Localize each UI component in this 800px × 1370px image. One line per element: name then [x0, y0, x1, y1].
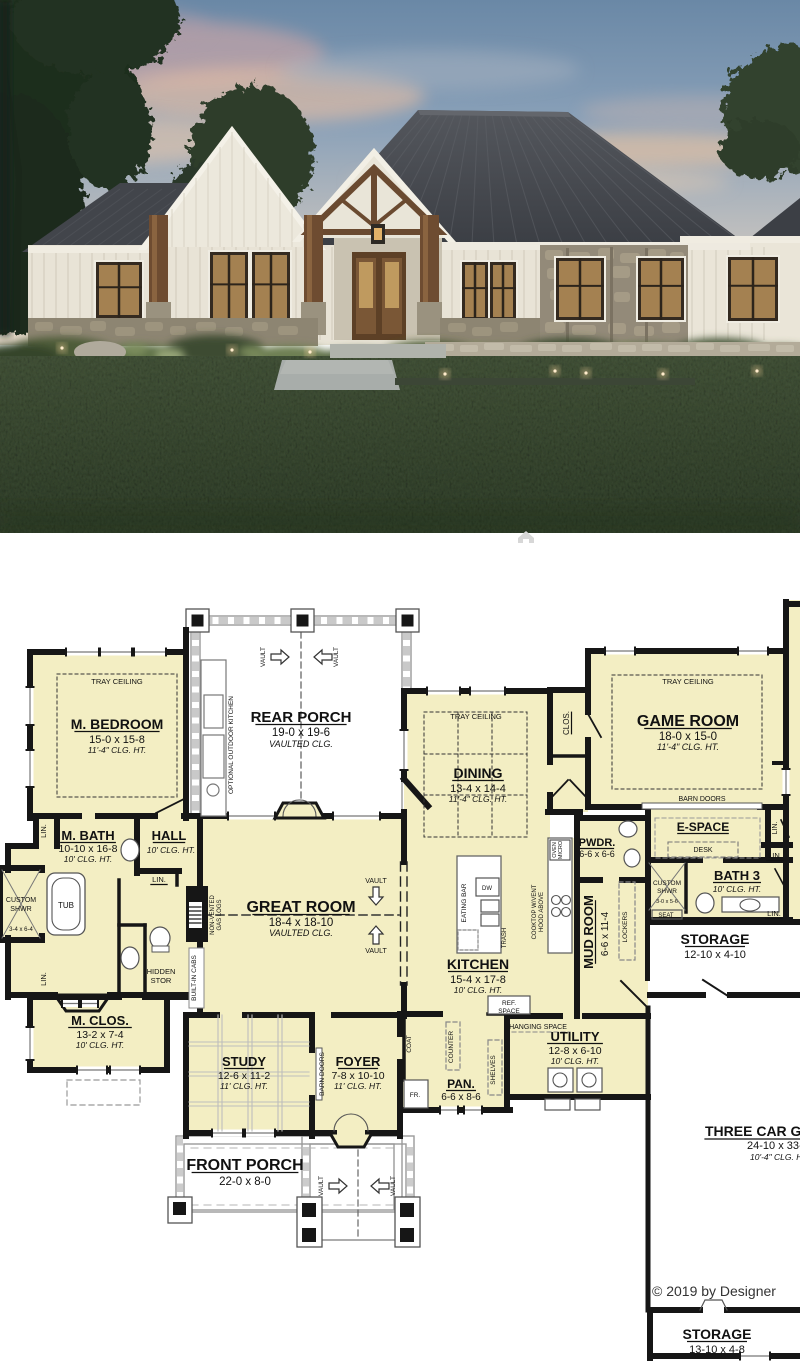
- svg-text:BUILT-IN CABS: BUILT-IN CABS: [191, 954, 198, 1000]
- svg-text:SHWR: SHWR: [657, 888, 677, 895]
- svg-text:10'-4" CLG. H: 10'-4" CLG. H: [750, 1152, 800, 1162]
- svg-text:TRAY CEILING: TRAY CEILING: [91, 677, 143, 686]
- svg-text:BARN DOORS: BARN DOORS: [678, 796, 725, 803]
- svg-text:11' CLG. HT.: 11' CLG. HT.: [334, 1081, 382, 1091]
- svg-text:REF.: REF.: [502, 1000, 516, 1007]
- svg-text:11'-4" CLG. HT.: 11'-4" CLG. HT.: [449, 794, 508, 804]
- svg-text:OPTIONAL OUTDOOR KITCHEN: OPTIONAL OUTDOOR KITCHEN: [228, 696, 235, 794]
- svg-text:MICRO: MICRO: [558, 840, 564, 859]
- svg-text:LIN.: LIN.: [152, 875, 166, 884]
- svg-text:REAR PORCH: REAR PORCH: [251, 709, 352, 726]
- svg-text:3-0 x 5-6: 3-0 x 5-6: [656, 899, 678, 905]
- svg-text:GAS LOGS: GAS LOGS: [217, 899, 223, 930]
- svg-text:10' CLG. HT.: 10' CLG. HT.: [551, 1056, 600, 1066]
- svg-text:10' CLG. HT.: 10' CLG. HT.: [147, 845, 196, 855]
- svg-text:HOOD ABOVE: HOOD ABOVE: [539, 892, 545, 932]
- svg-text:LIN.: LIN.: [767, 909, 781, 918]
- svg-text:FOYER: FOYER: [336, 1054, 381, 1069]
- svg-text:VAULTED CLG.: VAULTED CLG.: [269, 928, 333, 938]
- svg-text:CUSTOM: CUSTOM: [6, 897, 36, 904]
- svg-text:FR.: FR.: [410, 1092, 421, 1099]
- svg-text:UTILITY: UTILITY: [550, 1029, 599, 1044]
- svg-text:GREAT ROOM: GREAT ROOM: [246, 899, 355, 916]
- svg-text:SPACE: SPACE: [498, 1008, 520, 1015]
- svg-text:24-10 x 33-: 24-10 x 33-: [747, 1140, 800, 1152]
- svg-text:DINING: DINING: [454, 765, 503, 781]
- svg-text:M. BATH: M. BATH: [61, 828, 114, 843]
- svg-text:LIN.: LIN.: [768, 851, 782, 860]
- svg-text:PWDR.: PWDR.: [579, 837, 616, 849]
- svg-text:TRASH: TRASH: [502, 928, 508, 948]
- svg-text:© 2019 by Designer: © 2019 by Designer: [652, 1283, 776, 1299]
- svg-text:M. CLOS.: M. CLOS.: [71, 1013, 129, 1028]
- svg-text:MUD ROOM: MUD ROOM: [581, 895, 596, 969]
- svg-text:SHELVES: SHELVES: [490, 1055, 497, 1085]
- svg-text:FRONT PORCH: FRONT PORCH: [186, 1157, 303, 1174]
- svg-text:10' CLG. HT.: 10' CLG. HT.: [76, 1040, 125, 1050]
- svg-text:HIDDEN: HIDDEN: [147, 967, 176, 976]
- svg-text:BARN DOORS: BARN DOORS: [319, 1051, 326, 1095]
- svg-text:CLOS.: CLOS.: [562, 711, 571, 735]
- svg-text:VAULT: VAULT: [365, 948, 387, 955]
- svg-text:CUSTOM: CUSTOM: [653, 880, 681, 887]
- svg-text:TRAY CEILING: TRAY CEILING: [450, 712, 502, 721]
- svg-text:6-6 x 11-4: 6-6 x 11-4: [600, 911, 611, 956]
- svg-text:LIN.: LIN.: [772, 822, 779, 835]
- svg-text:BATH 3: BATH 3: [714, 868, 760, 883]
- svg-text:SEAT: SEAT: [658, 913, 674, 919]
- svg-text:VAULT: VAULT: [333, 647, 340, 667]
- svg-text:SHWR: SHWR: [10, 906, 31, 913]
- svg-text:VAULT: VAULT: [365, 878, 387, 885]
- svg-text:12-10 x 4-10: 12-10 x 4-10: [684, 949, 746, 961]
- svg-text:6-6 x 8-6: 6-6 x 8-6: [441, 1092, 481, 1103]
- svg-text:TRAY CEILING: TRAY CEILING: [662, 677, 714, 686]
- svg-text:STORAGE: STORAGE: [683, 1326, 752, 1342]
- svg-text:STUDY: STUDY: [222, 1054, 266, 1069]
- svg-text:13-10 x 4-8: 13-10 x 4-8: [689, 1344, 745, 1356]
- svg-text:E-SPACE: E-SPACE: [677, 820, 729, 834]
- svg-text:22-0 x 8-0: 22-0 x 8-0: [219, 1176, 271, 1188]
- svg-text:3-4 x 6-4: 3-4 x 6-4: [9, 927, 33, 933]
- svg-text:DW: DW: [482, 886, 492, 892]
- svg-text:COOKTOP W/VENT: COOKTOP W/VENT: [532, 884, 538, 939]
- svg-text:GAME ROOM: GAME ROOM: [637, 713, 739, 730]
- svg-text:COAT: COAT: [406, 1035, 413, 1053]
- svg-text:EATING BAR: EATING BAR: [461, 883, 468, 922]
- svg-text:STORAGE: STORAGE: [681, 931, 750, 947]
- svg-text:LOCKERS: LOCKERS: [622, 911, 629, 943]
- svg-text:TUB: TUB: [58, 901, 74, 910]
- svg-text:LIN.: LIN.: [39, 824, 48, 838]
- svg-text:LIN.: LIN.: [39, 972, 48, 986]
- svg-text:THREE CAR GA: THREE CAR GA: [705, 1123, 800, 1139]
- svg-text:10' CLG. HT.: 10' CLG. HT.: [713, 884, 762, 894]
- svg-text:NON-VENTED: NON-VENTED: [210, 895, 216, 935]
- svg-text:PAN.: PAN.: [447, 1077, 475, 1091]
- svg-text:VAULTED CLG.: VAULTED CLG.: [269, 739, 333, 749]
- svg-text:STOR: STOR: [151, 976, 172, 985]
- svg-text:KITCHEN: KITCHEN: [447, 956, 509, 972]
- svg-text:11' CLG. HT.: 11' CLG. HT.: [220, 1081, 268, 1091]
- svg-text:11'-4" CLG. HT.: 11'-4" CLG. HT.: [657, 742, 719, 752]
- svg-text:19-0 x 19-6: 19-0 x 19-6: [272, 727, 330, 739]
- svg-text:VAULT: VAULT: [260, 647, 267, 667]
- svg-text:COUNTER: COUNTER: [448, 1031, 455, 1063]
- svg-text:11'-4" CLG. HT.: 11'-4" CLG. HT.: [88, 745, 147, 755]
- svg-text:VAULT: VAULT: [390, 1176, 397, 1196]
- svg-text:10' CLG. HT.: 10' CLG. HT.: [454, 985, 503, 995]
- svg-text:HALL: HALL: [152, 828, 187, 843]
- svg-text:M. BEDROOM: M. BEDROOM: [71, 716, 164, 732]
- svg-text:VAULT: VAULT: [318, 1176, 325, 1196]
- svg-text:10' CLG. HT.: 10' CLG. HT.: [64, 854, 113, 864]
- svg-text:6-6 x 6-6: 6-6 x 6-6: [579, 849, 615, 859]
- svg-text:DESK: DESK: [693, 847, 712, 854]
